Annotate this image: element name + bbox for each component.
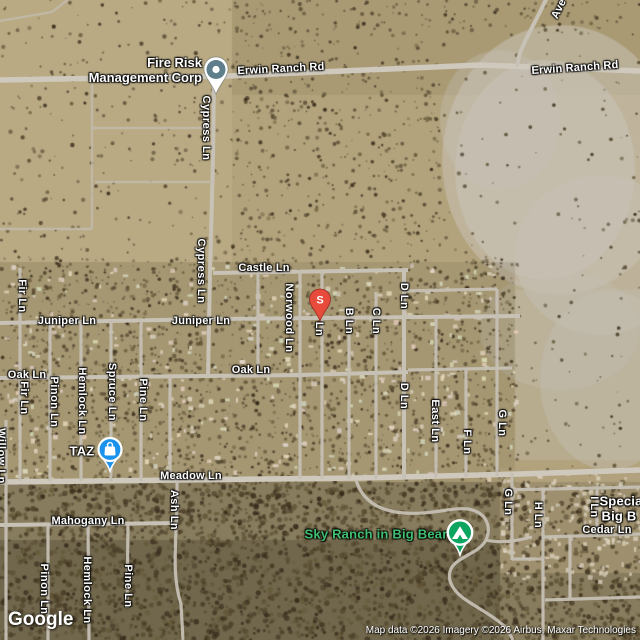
fire-risk-label-line2: Management Corp	[89, 70, 202, 85]
place-label-taz[interactable]: TAZ	[70, 444, 95, 459]
road-label-h-ln: H Ln	[532, 502, 544, 528]
road-label-hemlock-ln-north: Hemlock Ln	[76, 367, 88, 434]
road-label-norwood-ln: Norwood Ln	[283, 283, 295, 352]
fire-risk-label-line1: Fire Risk	[147, 55, 202, 70]
road-label-pine-ln-north: Pine Ln	[137, 378, 149, 421]
road-label-c-ln: C Ln	[370, 308, 382, 334]
map-viewport[interactable]: Erwin Ranch RdErwin Ranch RdAveCastle Ln…	[0, 0, 640, 640]
road-label-mahogany-ln: Mahogany Ln	[51, 515, 124, 527]
road-label-juniper-ln-west: Juniper Ln	[38, 315, 96, 327]
red-pin-icon: S	[308, 288, 332, 322]
place-label-special-line2-clipped[interactable]: Big B	[602, 509, 637, 524]
campground-tent-icon	[444, 517, 476, 557]
park-label-sky-ranch[interactable]: Sky Ranch in Big Bear	[305, 527, 448, 542]
place-label-special-line1-clipped[interactable]: Specia	[599, 494, 640, 509]
shopping-bag-icon	[95, 435, 125, 473]
road-label-oak-ln-east: Oak Ln	[232, 364, 271, 376]
fire-risk-management-corp-label[interactable]: Fire Risk Management Corp	[60, 55, 202, 85]
road-label-ave-partial: Ave	[549, 0, 569, 21]
road-label-castle-ln: Castle Ln	[238, 262, 289, 274]
road-label-erwin-ranch-rd-west: Erwin Ranch Rd	[237, 61, 325, 78]
road-label-spruce-ln: Spruce Ln	[106, 363, 118, 421]
road-label-pinon-ln-north: Pinon Ln	[48, 376, 60, 427]
place-pin-icon	[202, 56, 230, 96]
road-label-d-ln-north: D Ln	[398, 283, 410, 309]
road-label-pine-ln-south: Pine Ln	[122, 564, 134, 607]
google-logo[interactable]: Google	[8, 609, 73, 631]
road-label-pinon-ln-south: Pinon Ln	[38, 563, 50, 614]
road-label-oak-ln-west: Oak Ln	[8, 369, 47, 381]
road-label-f-ln: F Ln	[461, 429, 473, 454]
road-label-ash-ln: Ash Ln	[168, 490, 180, 530]
road-label-cypress-ln-north: Cypress Ln	[200, 96, 212, 161]
road-label-fir-ln-north: Fir Ln	[16, 279, 28, 313]
road-label-i-ln: I Ln	[588, 496, 600, 518]
taz-store-marker[interactable]	[95, 435, 125, 478]
road-label-d-ln-south: D Ln	[398, 383, 410, 409]
road-label-cypress-ln-south: Cypress Ln	[195, 239, 207, 304]
road-label-g-ln-south: G Ln	[502, 488, 514, 515]
road-label-b-ln: B Ln	[343, 308, 355, 334]
sky-ranch-campground-marker[interactable]	[444, 517, 476, 562]
road-label-juniper-ln-east: Juniper Ln	[172, 315, 230, 327]
road-label-cedar-ln: Cedar Ln	[582, 524, 631, 536]
road-label-east-ln: East Ln	[429, 399, 441, 442]
pin-letter: S	[316, 295, 323, 307]
road-label-willow-ln-clipped: Willow Ln	[0, 428, 7, 484]
location-pin-s[interactable]: S	[308, 288, 332, 327]
road-label-meadow-ln: Meadow Ln	[160, 470, 222, 482]
road-label-hemlock-ln-south: Hemlock Ln	[81, 556, 93, 623]
fire-risk-management-corp-pin[interactable]	[202, 56, 230, 101]
road-label-erwin-ranch-rd-east: Erwin Ranch Rd	[531, 59, 619, 77]
map-attribution: Map data ©2026 Imagery ©2026 Airbus, Max…	[366, 625, 636, 636]
road-label-g-ln-north: G Ln	[496, 409, 508, 436]
road-label-fir-ln-south: Fir Ln	[18, 381, 30, 415]
